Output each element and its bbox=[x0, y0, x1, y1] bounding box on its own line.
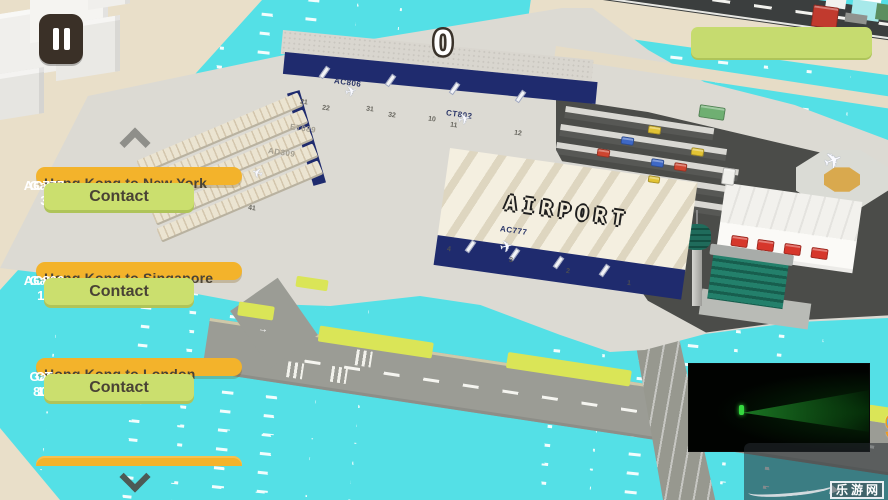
pause-icon bbox=[64, 28, 70, 50]
flight-card[interactable]: Hong Kong to London CT 802 Gate 10 Conta… bbox=[36, 358, 242, 376]
contact-button[interactable]: Contact bbox=[44, 374, 194, 401]
bus bbox=[698, 104, 726, 121]
car bbox=[673, 162, 687, 172]
flight-card[interactable]: Hong Kong to New York AC777 Gate 3 Conta… bbox=[36, 167, 242, 185]
notification-banner[interactable] bbox=[691, 27, 872, 58]
car bbox=[647, 125, 661, 135]
pause-button[interactable] bbox=[39, 14, 83, 64]
gate-number: 3 bbox=[509, 257, 514, 264]
gate-number: 31 bbox=[366, 105, 375, 113]
gate-number: 10 bbox=[428, 115, 437, 123]
plane-icon: ✈ bbox=[498, 239, 514, 257]
radar-overlay bbox=[688, 363, 870, 452]
watermark-swoosh bbox=[748, 478, 835, 499]
next-flight-card-peek[interactable] bbox=[36, 456, 242, 466]
van bbox=[721, 167, 736, 186]
stand-label: AC777 bbox=[500, 224, 528, 237]
gate-number: 32 bbox=[388, 111, 397, 119]
gate-number: 11 bbox=[450, 122, 458, 130]
gate-number: 22 bbox=[322, 104, 331, 112]
passenger-counter: 0 bbox=[405, 22, 481, 64]
fire-truck bbox=[783, 243, 801, 256]
fire-truck bbox=[810, 247, 828, 260]
contact-button[interactable]: Contact bbox=[44, 278, 194, 305]
plane-icon: ✈ bbox=[250, 165, 265, 181]
car bbox=[650, 158, 664, 168]
truck bbox=[811, 4, 840, 29]
gate-number: 21 bbox=[300, 98, 309, 106]
flight-card[interactable]: Hong Kong to Singapore AC806 Gate 11 Con… bbox=[36, 262, 242, 280]
car bbox=[596, 148, 610, 158]
gate-number: 41 bbox=[248, 204, 257, 212]
watermark-cn-name: 乐游网 bbox=[830, 481, 884, 499]
plane-icon: ✈ bbox=[821, 147, 846, 174]
gate-number: 2 bbox=[566, 268, 571, 275]
watermark: 962 .NET 乐游网 bbox=[744, 443, 888, 500]
fire-truck bbox=[730, 235, 748, 248]
pause-icon bbox=[53, 28, 59, 50]
contact-button[interactable]: Contact bbox=[44, 183, 194, 210]
game-screen: → AIRPORT AC806CT802ET689AD309AC77721223… bbox=[0, 0, 888, 500]
stand-label: ET689 bbox=[290, 122, 317, 135]
car bbox=[620, 136, 634, 146]
car bbox=[690, 147, 704, 157]
stand-label: AD309 bbox=[268, 146, 296, 159]
gate-number: 1 bbox=[627, 280, 632, 287]
fire-truck bbox=[756, 239, 774, 252]
gate-number: 12 bbox=[514, 129, 523, 137]
gate-number: 4 bbox=[447, 246, 452, 253]
car bbox=[648, 175, 661, 184]
